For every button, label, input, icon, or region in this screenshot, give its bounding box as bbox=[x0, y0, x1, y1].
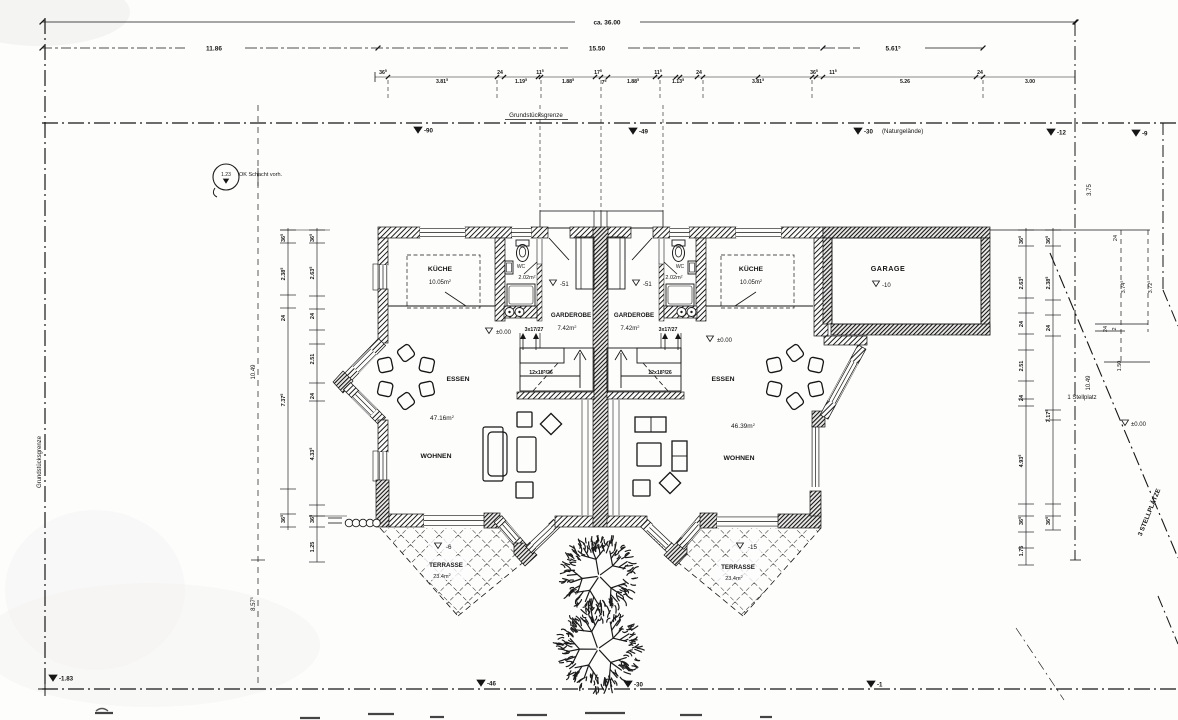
svg-text:-51: -51 bbox=[643, 282, 652, 288]
svg-text:24: 24 bbox=[310, 312, 316, 319]
svg-text:24: 24 bbox=[977, 70, 983, 76]
svg-text:KÜCHE: KÜCHE bbox=[428, 264, 453, 273]
svg-text:3.75: 3.75 bbox=[1087, 184, 1093, 196]
svg-text:11.86: 11.86 bbox=[206, 46, 222, 53]
svg-text:WC: WC bbox=[676, 264, 685, 270]
svg-text:-9: -9 bbox=[1142, 131, 1148, 138]
svg-text:-46: -46 bbox=[487, 681, 497, 688]
svg-text:-49: -49 bbox=[639, 129, 649, 136]
svg-text:KÜCHE: KÜCHE bbox=[739, 264, 764, 273]
svg-text:24: 24 bbox=[310, 392, 316, 399]
svg-text:1.75: 1.75 bbox=[1019, 546, 1025, 557]
svg-text:1.25: 1.25 bbox=[310, 542, 316, 553]
svg-text:10.05m2: 10.05m2 bbox=[740, 278, 763, 286]
svg-text:24: 24 bbox=[696, 70, 702, 76]
svg-text:24: 24 bbox=[1019, 394, 1025, 401]
svg-text:Grundstücksgrenze: Grundstücksgrenze bbox=[509, 112, 563, 119]
svg-text:12x185/26: 12x185/26 bbox=[648, 370, 672, 377]
svg-text:24: 24 bbox=[281, 314, 287, 321]
svg-text:46.39m2: 46.39m2 bbox=[731, 422, 756, 430]
svg-text:GARDEROBE: GARDEROBE bbox=[551, 312, 591, 319]
svg-text:-90: -90 bbox=[424, 128, 434, 135]
svg-text:-15: -15 bbox=[748, 544, 758, 551]
svg-text:OK Schacht vorh.: OK Schacht vorh. bbox=[239, 172, 283, 178]
svg-text:2.51: 2.51 bbox=[310, 354, 316, 365]
svg-text:-1.83: -1.83 bbox=[59, 676, 74, 683]
svg-text:TERRASSE: TERRASSE bbox=[721, 564, 755, 571]
svg-text:10.49: 10.49 bbox=[1086, 375, 1092, 391]
svg-text:24: 24 bbox=[1046, 324, 1052, 331]
svg-text:TERRASSE: TERRASSE bbox=[429, 562, 463, 569]
svg-text:±0.00: ±0.00 bbox=[496, 330, 512, 336]
svg-text:ca. 36.00: ca. 36.00 bbox=[593, 20, 620, 27]
svg-text:2.51: 2.51 bbox=[1019, 361, 1025, 372]
svg-text:3.00: 3.00 bbox=[1025, 79, 1035, 85]
svg-text:1.50: 1.50 bbox=[1117, 361, 1123, 372]
svg-text:8.575: 8.575 bbox=[250, 597, 257, 611]
svg-text:2.02m2: 2.02m2 bbox=[518, 275, 535, 282]
svg-text:2.02m2: 2.02m2 bbox=[665, 275, 682, 282]
svg-text:-10: -10 bbox=[882, 283, 891, 289]
svg-text:15.50: 15.50 bbox=[589, 46, 606, 53]
svg-text:(Naturgelände): (Naturgelände) bbox=[882, 128, 923, 135]
svg-text:GARAGE: GARAGE bbox=[871, 264, 906, 273]
svg-text:-30: -30 bbox=[634, 682, 644, 689]
svg-text:3x17/27: 3x17/27 bbox=[525, 327, 544, 333]
svg-text:3x17/27: 3x17/27 bbox=[659, 327, 678, 333]
svg-text:-6: -6 bbox=[446, 544, 452, 551]
svg-text:ESSEN: ESSEN bbox=[711, 376, 734, 383]
svg-text:WC: WC bbox=[517, 264, 526, 270]
svg-text:12x185/26: 12x185/26 bbox=[529, 370, 553, 377]
svg-text:ESSEN: ESSEN bbox=[446, 376, 469, 383]
svg-text:±0.00: ±0.00 bbox=[1131, 422, 1147, 428]
svg-text:47.16m2: 47.16m2 bbox=[430, 414, 455, 422]
svg-text:1 Stellplatz: 1 Stellplatz bbox=[1067, 395, 1096, 401]
svg-text:Grundstücksgrenze: Grundstücksgrenze bbox=[37, 435, 43, 488]
svg-text:10.05m2: 10.05m2 bbox=[429, 278, 452, 286]
svg-text:24: 24 bbox=[1113, 235, 1119, 241]
svg-text:-1: -1 bbox=[877, 682, 883, 689]
svg-text:±0.00: ±0.00 bbox=[717, 338, 733, 344]
svg-text:5.26: 5.26 bbox=[900, 79, 910, 85]
svg-text:WOHNEN: WOHNEN bbox=[724, 455, 755, 462]
svg-text:10.49: 10.49 bbox=[251, 364, 257, 380]
svg-text:WOHNEN: WOHNEN bbox=[421, 453, 452, 460]
svg-text:-30: -30 bbox=[864, 129, 874, 136]
svg-text:1.23: 1.23 bbox=[221, 172, 231, 178]
svg-text:24: 24 bbox=[497, 70, 503, 76]
svg-text:GARDEROBE: GARDEROBE bbox=[614, 312, 654, 319]
svg-text:-12: -12 bbox=[1057, 130, 1067, 137]
svg-text:24: 24 bbox=[1103, 326, 1109, 332]
svg-text:-51: -51 bbox=[560, 282, 569, 288]
svg-text:2: 2 bbox=[1112, 327, 1118, 330]
svg-text:24: 24 bbox=[1019, 320, 1025, 327]
